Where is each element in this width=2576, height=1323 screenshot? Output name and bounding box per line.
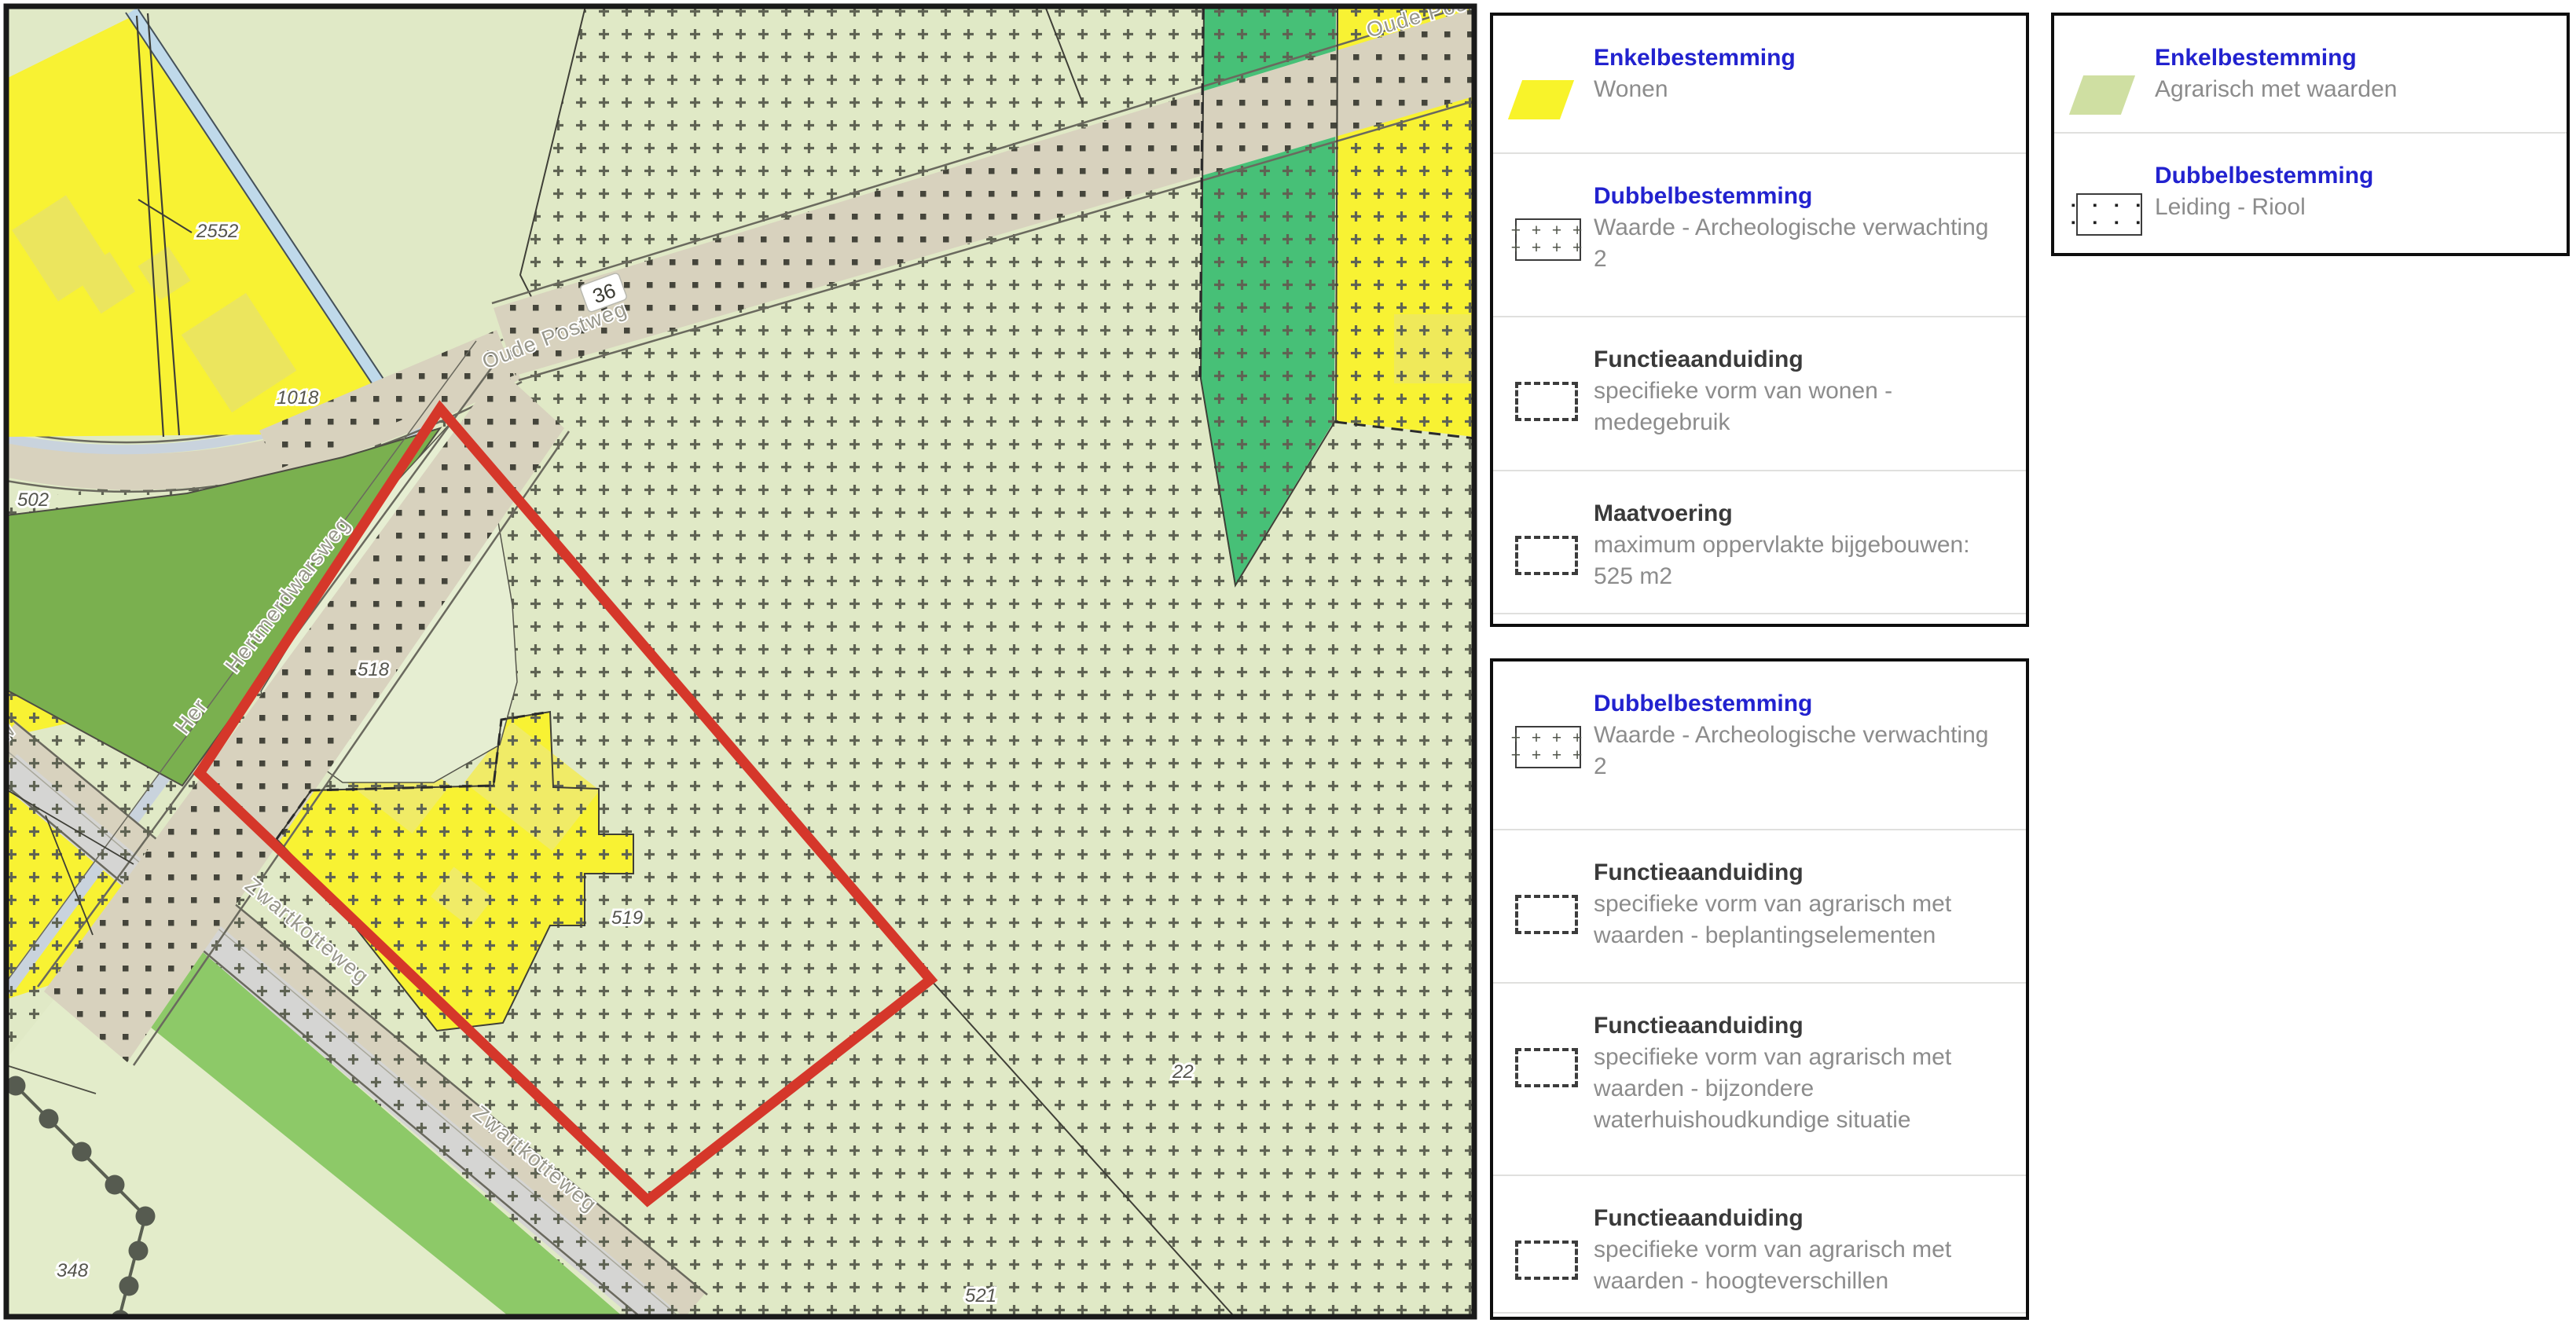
legend-item: Functieaanduiding specifieke vorm van ag…	[1493, 830, 2026, 984]
legend-label: Agrarisch met waarden	[2155, 74, 2546, 105]
parcel-label-502: 502	[17, 489, 49, 511]
legend-label: maximum oppervlakte bijgebouwen: 525 m2	[1594, 530, 2005, 592]
legend-item: Enkelbestemming Agrarisch met waarden	[2054, 16, 2567, 134]
archeo-cross-swatch-icon: + + + + + + + +	[1515, 218, 1581, 261]
legend-category-link[interactable]: Dubbelbestemming	[1594, 181, 2005, 212]
legend-category: Maatvoering	[1594, 498, 2005, 530]
legend-label: Wonen	[1594, 74, 2005, 105]
parcel-label-2552: 2552	[196, 221, 238, 242]
legend-panel-plan-wonen: Enkelbestemming Wonen + + + + + + + + Du…	[1490, 13, 2029, 627]
legend-label: Waarde - Archeologische verwachting 2	[1594, 212, 2005, 275]
agrarisch-swatch-icon	[2069, 75, 2135, 115]
legend-panel-agrarisch-aanduidingen: + + + + + + + + Dubbelbestemming Waarde …	[1490, 658, 2029, 1320]
legend-item: Enkelbestemming Wonen	[1493, 16, 2026, 154]
legend-item: Functieaanduiding specifieke vorm van ag…	[1493, 1176, 2026, 1314]
archeo-cross-swatch-icon: + + + + + + + +	[1515, 726, 1581, 768]
legend-item: Functieaanduiding specifieke vorm van ag…	[1493, 984, 2026, 1176]
legend-category: Functieaanduiding	[1594, 1203, 2005, 1234]
parcel-label-519: 519	[611, 907, 643, 929]
legend-panel-agrarisch-leiding: Enkelbestemming Agrarisch met waarden ▪ …	[2051, 13, 2570, 256]
legend-category-link[interactable]: Enkelbestemming	[1594, 42, 2005, 74]
legend-item: ▪ ▪ ▪ ▪ ▪ ▪ ▪ ▪ Dubbelbestemming Leiding…	[2054, 134, 2567, 236]
parcel-label-521: 521	[965, 1285, 996, 1307]
legend-category-link[interactable]: Dubbelbestemming	[2155, 160, 2546, 192]
zoning-map[interactable]: 2552 1018 502 518 519 22 521 348 36 Oude…	[0, 0, 1481, 1323]
legend-category: Functieaanduiding	[1594, 344, 2005, 376]
parcel-label-348: 348	[57, 1260, 89, 1281]
legend-label: Leiding - Riool	[2155, 192, 2546, 223]
zoning-map-viewer: 2552 1018 502 518 519 22 521 348 36 Oude…	[0, 0, 2576, 1323]
dashed-area-swatch-icon	[1515, 382, 1578, 421]
wonen-swatch-icon	[1508, 80, 1574, 119]
parcel-label-518: 518	[358, 659, 390, 680]
legend-category-link[interactable]: Dubbelbestemming	[1594, 688, 2005, 720]
dashed-area-swatch-icon	[1515, 1241, 1578, 1280]
dashed-area-swatch-icon	[1515, 1048, 1578, 1087]
legend-label: specifieke vorm van agrarisch met waarde…	[1594, 889, 2005, 951]
legend-label: specifieke vorm van agrarisch met waarde…	[1594, 1234, 2005, 1297]
legend-item: Functieaanduiding specifieke vorm van wo…	[1493, 317, 2026, 471]
legend-label: Waarde - Archeologische verwachting 2	[1594, 720, 2005, 782]
legend-label: specifieke vorm van agrarisch met waarde…	[1594, 1042, 2005, 1136]
dashed-area-swatch-icon	[1515, 895, 1578, 934]
legend-category: Functieaanduiding	[1594, 1010, 2005, 1042]
legend-item: + + + + + + + + Dubbelbestemming Waarde …	[1493, 661, 2026, 830]
legend-label: specifieke vorm van wonen - medegebruik	[1594, 376, 2005, 438]
legend-item: + + + + + + + + Dubbelbestemming Waarde …	[1493, 154, 2026, 317]
legend-item: Maatvoering maximum oppervlakte bijgebou…	[1493, 471, 2026, 614]
parcel-label-1018: 1018	[277, 387, 319, 409]
parcel-label-22: 22	[1172, 1061, 1194, 1083]
leiding-riool-swatch-icon: ▪ ▪ ▪ ▪ ▪ ▪ ▪ ▪	[2076, 193, 2142, 236]
legend-category-link[interactable]: Enkelbestemming	[2155, 42, 2546, 74]
dashed-area-swatch-icon	[1515, 536, 1578, 575]
legend-category: Functieaanduiding	[1594, 857, 2005, 889]
